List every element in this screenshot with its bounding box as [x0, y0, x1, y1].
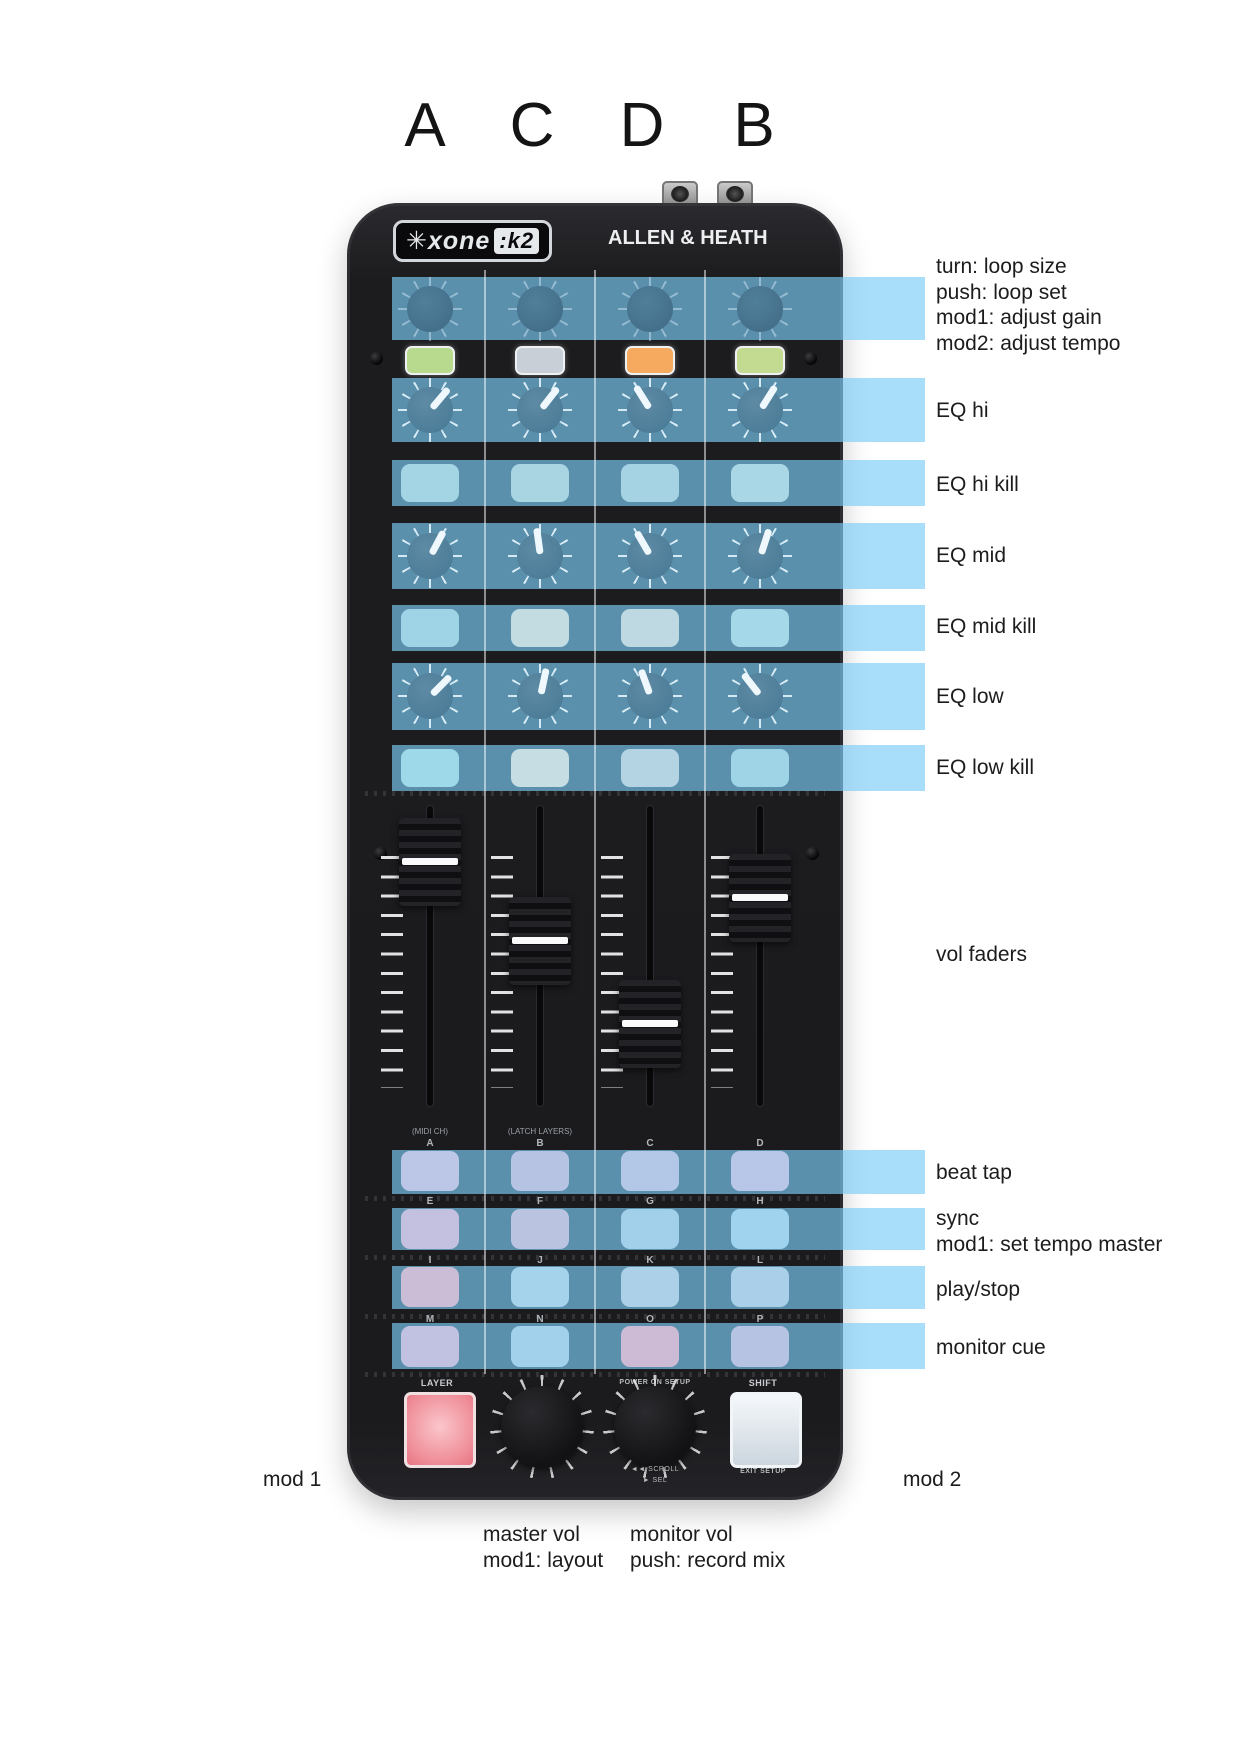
loop-encoder[interactable]: [508, 277, 572, 341]
pad-button-d[interactable]: [731, 1151, 789, 1191]
exit-setup-label: EXIT SETUP: [713, 1468, 813, 1475]
grid-letter: A: [390, 1138, 470, 1149]
eq-mid-knob[interactable]: [618, 524, 682, 588]
pad-button-f[interactable]: [511, 1209, 569, 1249]
eq-mid-kill-button[interactable]: [731, 609, 789, 647]
pad-button-h[interactable]: [731, 1209, 789, 1249]
annotation-sync: sync mod1: set tempo master: [936, 1206, 1162, 1257]
loop-encoder[interactable]: [728, 277, 792, 341]
annotation-encoder-functions: turn: loop size push: loop set mod1: adj…: [936, 254, 1120, 356]
pad-button-b[interactable]: [511, 1151, 569, 1191]
brand-label: ALLEN & HEATH: [608, 227, 768, 250]
volume-fader[interactable]: [729, 854, 791, 942]
eq-low-knob[interactable]: [618, 664, 682, 728]
annotated-xone-k2-diagram: A C D B ✳xone :k2 ALLEN & HEATH: [0, 0, 1239, 1753]
knob-pointer: [429, 674, 452, 697]
screw: [370, 352, 383, 365]
eq-hi-kill-button[interactable]: [621, 464, 679, 502]
annotation-beat-tap: beat tap: [936, 1160, 1012, 1186]
loop-encoder[interactable]: [398, 277, 462, 341]
pad-button-k[interactable]: [621, 1267, 679, 1307]
grid-letter: K: [610, 1255, 690, 1266]
eq-hi-knob[interactable]: [508, 378, 572, 442]
logo-text: ✳xone: [406, 226, 490, 256]
eq-low-kill-button[interactable]: [731, 749, 789, 787]
deck-letter-d: D: [587, 90, 697, 161]
pad-button-g[interactable]: [621, 1209, 679, 1249]
eq-low-kill-button[interactable]: [401, 749, 459, 787]
eq-mid-knob[interactable]: [398, 524, 462, 588]
grid-letter: J: [500, 1255, 580, 1266]
knob-pointer: [537, 668, 549, 695]
knob-pointer: [533, 528, 544, 555]
pad-button-n[interactable]: [511, 1326, 569, 1367]
grid-letter: L: [720, 1255, 800, 1266]
pad-button-e[interactable]: [401, 1209, 459, 1249]
monitor-vol-encoder[interactable]: [603, 1375, 707, 1479]
knob-pointer: [538, 386, 560, 411]
pad-button-c[interactable]: [621, 1151, 679, 1191]
eq-hi-kill-button[interactable]: [511, 464, 569, 502]
volume-fader[interactable]: [619, 980, 681, 1068]
deck-letter-a: A: [370, 90, 480, 161]
knob-pointer: [758, 384, 778, 410]
eq-low-knob[interactable]: [508, 664, 572, 728]
annotation-eq-low-kill: EQ low kill: [936, 755, 1034, 781]
knob-pointer: [633, 530, 652, 556]
annotation-monitor-vol: monitor vol push: record mix: [630, 1522, 785, 1574]
pad-button-i[interactable]: [401, 1267, 459, 1307]
annotation-eq-hi: EQ hi: [936, 398, 989, 424]
eq-hi-kill-button[interactable]: [401, 464, 459, 502]
xone-k2-logo: ✳xone :k2: [393, 220, 552, 262]
eq-mid-kill-button[interactable]: [621, 609, 679, 647]
loop-encoder[interactable]: [618, 277, 682, 341]
annotation-vol-faders: vol faders: [936, 942, 1027, 968]
eq-hi-knob[interactable]: [728, 378, 792, 442]
grid-letter: H: [720, 1196, 800, 1207]
eq-low-knob[interactable]: [398, 664, 462, 728]
pad-button-j[interactable]: [511, 1267, 569, 1307]
eq-mid-kill-button[interactable]: [401, 609, 459, 647]
column-separator: [594, 270, 596, 1374]
eq-mid-knob[interactable]: [728, 524, 792, 588]
knob-pointer: [757, 528, 772, 555]
annotation-mod1: mod 1: [263, 1467, 321, 1493]
deck-letter-b: B: [699, 90, 809, 161]
column-separator: [704, 270, 706, 1374]
annotation-eq-low: EQ low: [936, 684, 1004, 710]
eq-low-kill-button[interactable]: [621, 749, 679, 787]
annotation-mod2: mod 2: [903, 1467, 961, 1493]
volume-fader[interactable]: [399, 818, 461, 906]
screw: [804, 352, 817, 365]
led-button[interactable]: [735, 346, 785, 375]
annotation-eq-mid-kill: EQ mid kill: [936, 614, 1036, 640]
eq-hi-knob[interactable]: [618, 378, 682, 442]
volume-fader[interactable]: [509, 897, 571, 985]
shift-label: SHIFT: [718, 1378, 808, 1388]
deck-letter-c: C: [477, 90, 587, 161]
pad-button-m[interactable]: [401, 1326, 459, 1367]
screw: [806, 847, 819, 860]
knob-pointer: [632, 384, 652, 410]
grid-letter: G: [610, 1196, 690, 1207]
grid-letter: F: [500, 1196, 580, 1207]
eq-mid-kill-button[interactable]: [511, 609, 569, 647]
eq-low-knob[interactable]: [728, 664, 792, 728]
pad-button-o[interactable]: [621, 1326, 679, 1367]
pad-button-p[interactable]: [731, 1326, 789, 1367]
grid-letter: D: [720, 1138, 800, 1149]
shift-button[interactable]: [730, 1392, 802, 1468]
pad-button-a[interactable]: [401, 1151, 459, 1191]
layer-label: LAYER: [392, 1378, 482, 1388]
knob-pointer: [740, 672, 762, 697]
layer-button[interactable]: [404, 1392, 476, 1468]
led-button[interactable]: [625, 346, 675, 375]
midi-ch-label: (MIDI CH): [370, 1127, 490, 1136]
eq-hi-knob[interactable]: [398, 378, 462, 442]
knob-pointer: [637, 668, 652, 695]
column-separator: [484, 270, 486, 1374]
annotation-master-vol: master vol mod1: layout: [483, 1522, 603, 1574]
grid-letter: E: [390, 1196, 470, 1207]
latch-layers-label: (LATCH LAYERS): [480, 1127, 600, 1136]
eq-low-kill-button[interactable]: [511, 749, 569, 787]
knob-pointer: [428, 530, 446, 556]
annotation-eq-mid: EQ mid: [936, 543, 1006, 569]
knob-pointer: [429, 386, 451, 410]
annotation-play-stop: play/stop: [936, 1277, 1020, 1303]
led-button[interactable]: [515, 346, 565, 375]
grid-letter: C: [610, 1138, 690, 1149]
logo-k2-text: :k2: [494, 228, 539, 254]
eq-hi-kill-button[interactable]: [731, 464, 789, 502]
master-vol-encoder[interactable]: [490, 1375, 594, 1479]
grid-letter: I: [390, 1255, 470, 1266]
led-button[interactable]: [405, 346, 455, 375]
scroll-label: ◄◄ SCROLL: [605, 1466, 705, 1473]
pad-button-l[interactable]: [731, 1267, 789, 1307]
eq-mid-knob[interactable]: [508, 524, 572, 588]
grid-letter: B: [500, 1138, 580, 1149]
annotation-monitor-cue: monitor cue: [936, 1335, 1046, 1361]
annotation-eq-hi-kill: EQ hi kill: [936, 472, 1019, 498]
sel-label: ► SEL: [605, 1477, 705, 1484]
fader-slot: [757, 806, 763, 1106]
